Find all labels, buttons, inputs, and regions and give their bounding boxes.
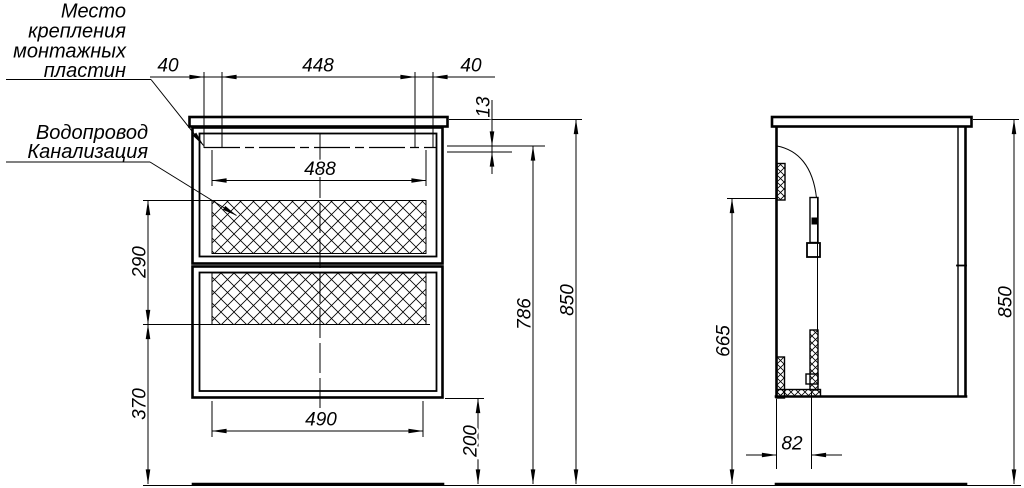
mounting-note-line-4: пластин <box>44 60 126 82</box>
annotation-text: Место крепления монтажных пластин Водопр… <box>13 1 148 164</box>
bracket-foot <box>807 243 820 257</box>
dim-665-label: 665 <box>714 325 735 357</box>
dim-40-right-label: 40 <box>460 56 482 77</box>
bottom-panel-strip <box>777 390 821 397</box>
mounting-plate-side <box>777 164 785 201</box>
dim-290-label: 290 <box>130 246 151 279</box>
dim-448-label: 448 <box>302 56 334 77</box>
dim-490-label: 490 <box>305 410 337 431</box>
bracket-clip <box>812 218 819 225</box>
mounting-note-line-2: крепления <box>28 21 126 43</box>
dim-200-label: 200 <box>461 425 482 458</box>
dim-786-label: 786 <box>515 298 536 330</box>
side-view <box>772 117 972 484</box>
technical-drawing: Место крепления монтажных пластин Водопр… <box>0 0 1024 488</box>
countertop-side <box>772 117 972 127</box>
lower-panel-strip-inner <box>810 330 818 390</box>
dim-488-label: 488 <box>304 159 336 180</box>
plumbing-note-line-2: Канализация <box>27 141 148 163</box>
drawing-page: Место крепления монтажных пластин Водопр… <box>0 0 1024 488</box>
service-zone-hatch-upper <box>212 201 426 254</box>
dim-40-left-label: 40 <box>157 56 179 77</box>
dim-370-label: 370 <box>130 388 151 420</box>
dim-82-label: 82 <box>781 434 803 455</box>
mounting-note-leader <box>151 80 204 146</box>
dim-850-front-label: 850 <box>558 284 579 316</box>
dim-13-label: 13 <box>474 96 495 118</box>
service-zone-hatch-lower <box>212 273 426 325</box>
dim-850-side-label: 850 <box>996 286 1017 318</box>
mounting-note-line-1: Место <box>61 1 126 23</box>
countertop-front <box>190 117 448 127</box>
